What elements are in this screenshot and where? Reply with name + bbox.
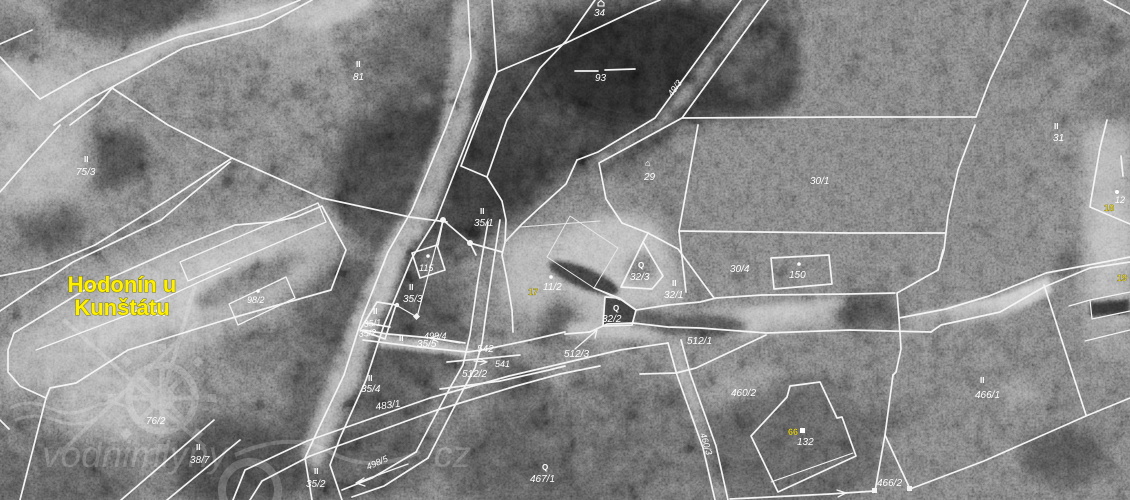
svg-text:460/2: 460/2: [731, 388, 756, 399]
svg-text:32/1: 32/1: [664, 290, 683, 301]
svg-text:30/1: 30/1: [810, 176, 829, 187]
svg-text:II: II: [409, 283, 413, 292]
svg-text:35/4: 35/4: [361, 384, 381, 395]
svg-text:Q: Q: [613, 304, 619, 313]
svg-text:466/1: 466/1: [975, 390, 1000, 401]
svg-text:93: 93: [595, 73, 607, 84]
svg-text:81: 81: [353, 72, 364, 83]
svg-text:18: 18: [1104, 203, 1114, 213]
svg-text:115: 115: [419, 263, 434, 273]
svg-text:466/2: 466/2: [877, 478, 902, 489]
svg-text:12: 12: [1115, 195, 1125, 205]
svg-text:132: 132: [797, 437, 814, 448]
svg-text:66: 66: [788, 427, 798, 437]
svg-text:II: II: [373, 307, 377, 316]
svg-text:Q: Q: [542, 463, 548, 472]
svg-text:541: 541: [495, 359, 510, 369]
svg-text:542: 542: [477, 344, 494, 355]
svg-text:35/2: 35/2: [358, 327, 376, 339]
svg-text:II: II: [314, 467, 318, 476]
svg-text:II: II: [1054, 122, 1058, 131]
svg-text:75/3: 75/3: [76, 167, 96, 178]
svg-text:11/2: 11/2: [543, 282, 562, 293]
svg-text:vodnimlyny: vodnimlyny: [42, 434, 230, 475]
svg-text:II: II: [980, 376, 984, 385]
svg-text:II: II: [480, 207, 484, 216]
svg-text:19: 19: [1117, 273, 1127, 283]
svg-text:Kunštátu: Kunštátu: [74, 295, 169, 320]
svg-text:467/1: 467/1: [530, 474, 555, 485]
svg-text:29: 29: [643, 172, 656, 183]
svg-text:35/1: 35/1: [474, 218, 493, 229]
svg-text:35/3: 35/3: [403, 294, 423, 305]
svg-text:II: II: [368, 374, 372, 383]
svg-text:II: II: [399, 334, 403, 343]
svg-text:17: 17: [528, 287, 538, 297]
svg-text:cz: cz: [434, 434, 471, 475]
svg-text:II: II: [356, 60, 360, 69]
svg-text:98/2: 98/2: [247, 295, 265, 305]
svg-text:512/1: 512/1: [687, 336, 712, 347]
svg-text:Hodonín u: Hodonín u: [68, 272, 177, 297]
svg-text:32/3: 32/3: [630, 272, 650, 283]
svg-text:32/2: 32/2: [602, 314, 622, 325]
svg-text:499/4: 499/4: [424, 331, 447, 341]
svg-text:31: 31: [1053, 133, 1064, 144]
svg-text:512/3: 512/3: [564, 349, 589, 360]
svg-text:512/2: 512/2: [462, 369, 487, 380]
svg-text:Q: Q: [638, 261, 644, 270]
svg-text:35/2: 35/2: [306, 479, 326, 490]
svg-text:II: II: [84, 155, 88, 164]
svg-text:II: II: [672, 279, 676, 288]
svg-text:30/4: 30/4: [730, 264, 750, 275]
svg-text:34: 34: [594, 8, 606, 19]
svg-text:150: 150: [789, 270, 806, 281]
svg-text:⌂: ⌂: [645, 158, 650, 168]
